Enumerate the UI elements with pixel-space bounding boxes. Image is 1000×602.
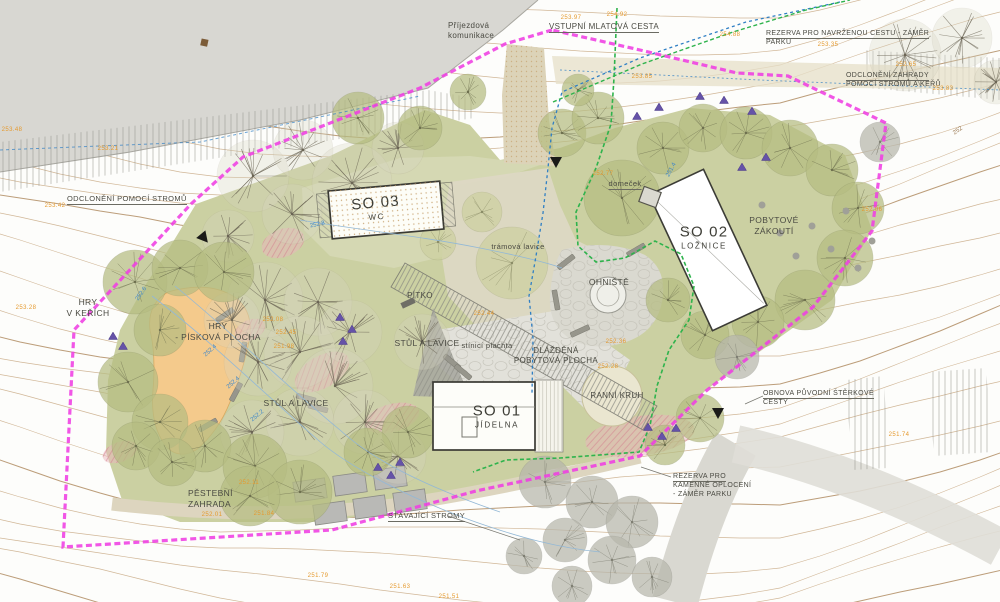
survey-mark xyxy=(200,38,208,46)
conifer-icon xyxy=(633,112,642,120)
tree-canopy xyxy=(462,192,502,232)
tree-canopy xyxy=(519,456,571,508)
tree-canopy xyxy=(869,19,941,91)
shrub-dot xyxy=(843,208,850,215)
tree-canopy xyxy=(194,242,254,302)
tree-canopy xyxy=(676,394,724,442)
tree-canopy xyxy=(588,536,636,584)
tree-canopy xyxy=(646,278,690,322)
tree-canopy xyxy=(552,566,592,602)
tree-canopy xyxy=(134,304,186,356)
tree-canopy xyxy=(932,8,992,68)
tree-canopy xyxy=(476,227,548,299)
gravel-road xyxy=(675,444,736,602)
building-so01 xyxy=(433,380,563,452)
tree-canopy xyxy=(543,518,587,562)
tree-canopy xyxy=(220,466,280,526)
tree-canopy xyxy=(506,538,542,574)
fire-pit xyxy=(590,277,626,313)
site-plan-page: SO 01 JÍDELNA SO 02 LOŽNICE SO 03 WC Pří… xyxy=(0,0,1000,602)
shrub-dot xyxy=(777,230,784,237)
shrub-dot xyxy=(809,223,816,230)
conifer-icon xyxy=(109,332,118,340)
tree-canopy xyxy=(715,335,759,379)
shrub-dot xyxy=(793,253,800,260)
shrub-dot xyxy=(759,202,766,209)
tree-canopy xyxy=(148,438,196,486)
tree-canopy xyxy=(562,74,594,106)
shrub-dot xyxy=(869,238,876,245)
tree-canopy xyxy=(632,557,672,597)
conifer-icon xyxy=(655,103,664,111)
tree-canopy xyxy=(860,122,900,162)
tree-canopy xyxy=(398,106,442,150)
tree-canopy xyxy=(679,104,727,152)
site-plan-drawing xyxy=(0,0,1000,602)
tree-canopy xyxy=(262,184,322,244)
shrub-dot xyxy=(855,265,862,272)
tree-canopy xyxy=(394,314,450,370)
tree-canopy xyxy=(450,74,486,110)
shrub-dot xyxy=(828,246,835,253)
conifer-icon xyxy=(720,96,729,104)
tree-canopy xyxy=(832,182,884,234)
